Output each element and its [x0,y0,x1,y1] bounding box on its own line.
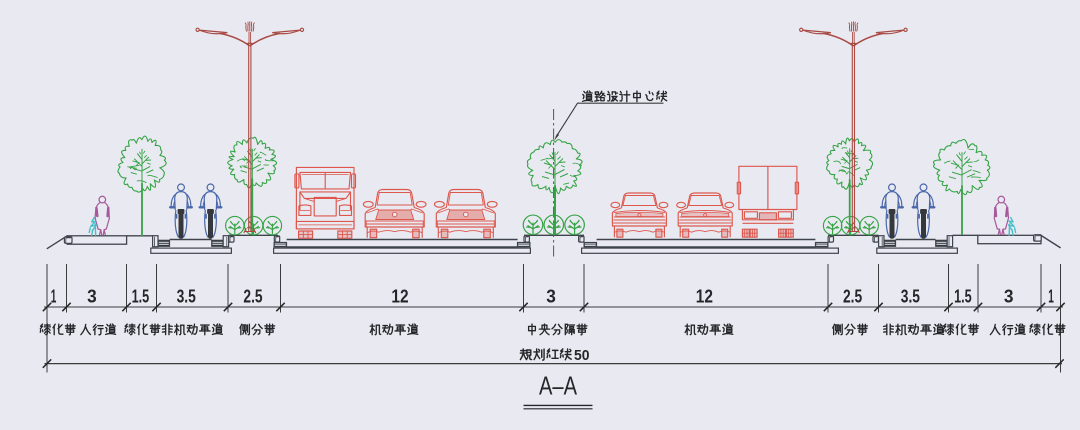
svg-text:2.5: 2.5 [843,287,862,307]
svg-text:A–A: A–A [539,371,577,401]
svg-text:3: 3 [1004,287,1014,307]
svg-text:3: 3 [87,287,97,307]
svg-text:2.5: 2.5 [243,287,262,307]
svg-text:1: 1 [1048,287,1054,307]
svg-text:12: 12 [696,287,713,307]
svg-text:3.5: 3.5 [901,287,920,307]
svg-text:1.5: 1.5 [954,287,972,307]
svg-text:12: 12 [391,287,408,307]
svg-text:50: 50 [574,347,590,364]
svg-text:3.5: 3.5 [177,287,196,307]
svg-text:3: 3 [546,287,556,307]
svg-text:1.5: 1.5 [132,287,150,307]
svg-text:1: 1 [51,287,57,307]
